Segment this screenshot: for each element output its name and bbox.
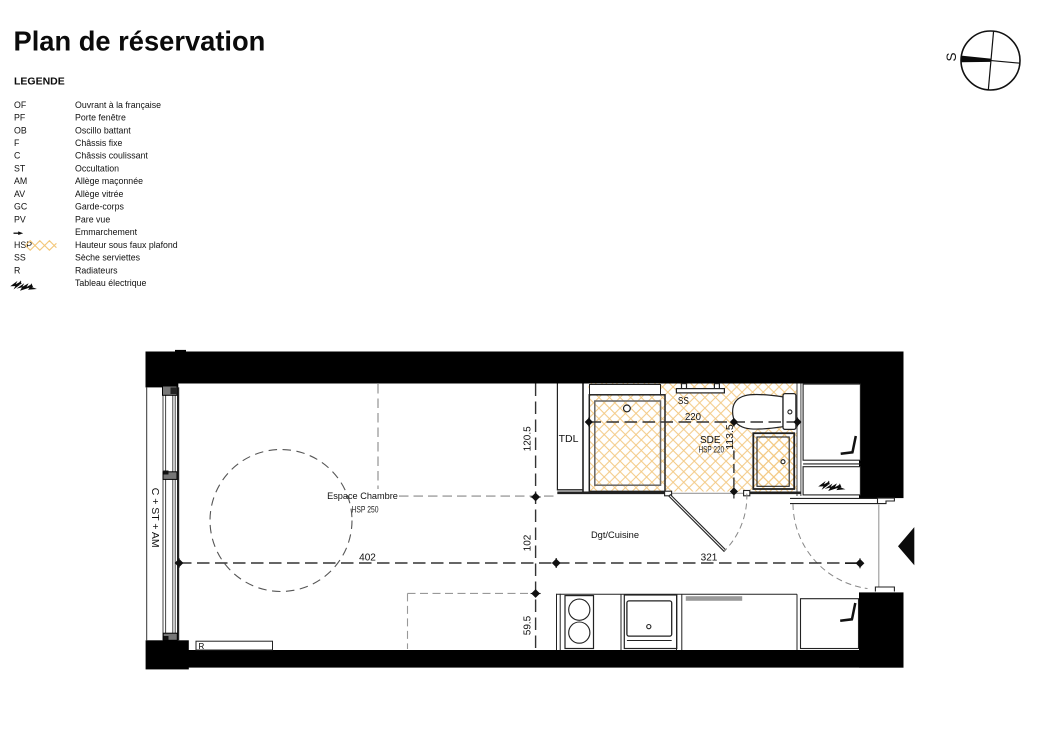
- svg-text:PV: PV: [14, 214, 26, 224]
- svg-text:Pare vue: Pare vue: [75, 214, 110, 224]
- svg-text:GC: GC: [14, 202, 28, 212]
- svg-text:SS: SS: [14, 253, 26, 263]
- svg-text:Emmarchement: Emmarchement: [75, 227, 138, 237]
- svg-text:C: C: [14, 151, 21, 161]
- svg-text:F: F: [14, 138, 20, 148]
- svg-text:HSP 250: HSP 250: [352, 505, 379, 515]
- svg-text:Oscillo battant: Oscillo battant: [75, 125, 131, 135]
- svg-text:Tableau électrique: Tableau électrique: [75, 278, 147, 288]
- svg-text:S: S: [944, 52, 959, 61]
- svg-text:Hauteur sous faux plafond: Hauteur sous faux plafond: [75, 240, 178, 250]
- svg-text:402: 402: [359, 553, 376, 564]
- svg-text:C + ST + AM: C + ST + AM: [149, 488, 161, 548]
- svg-text:120.5: 120.5: [523, 426, 534, 451]
- svg-text:Châssis fixe: Châssis fixe: [75, 138, 123, 148]
- svg-text:220: 220: [685, 411, 701, 423]
- svg-text:AM: AM: [14, 176, 27, 186]
- svg-text:Sèche serviettes: Sèche serviettes: [75, 253, 141, 263]
- svg-text:59.5: 59.5: [523, 615, 534, 635]
- svg-text:Porte fenêtre: Porte fenêtre: [75, 113, 126, 123]
- svg-text:102: 102: [523, 534, 534, 551]
- svg-text:HSP 220: HSP 220: [698, 445, 724, 455]
- svg-text:SS: SS: [678, 396, 689, 407]
- svg-text:Allège vitrée: Allège vitrée: [75, 189, 124, 199]
- svg-text:Garde-corps: Garde-corps: [75, 202, 124, 212]
- svg-text:Espace Chambre: Espace Chambre: [327, 491, 398, 501]
- svg-text:AV: AV: [14, 189, 25, 199]
- svg-text:113.5: 113.5: [724, 424, 736, 450]
- svg-text:Occultation: Occultation: [75, 163, 119, 173]
- svg-text:TDL: TDL: [559, 433, 579, 445]
- svg-text:OB: OB: [14, 125, 27, 135]
- svg-text:R: R: [199, 642, 205, 651]
- svg-text:Allège maçonnée: Allège maçonnée: [75, 176, 143, 186]
- svg-text:R: R: [14, 265, 20, 275]
- svg-text:Ouvrant à la française: Ouvrant à la française: [75, 100, 161, 110]
- svg-text:321: 321: [701, 553, 718, 564]
- svg-text:PF: PF: [14, 113, 26, 123]
- svg-text:ST: ST: [14, 163, 26, 173]
- svg-text:LEGENDE: LEGENDE: [14, 76, 65, 88]
- svg-text:Châssis coulissant: Châssis coulissant: [75, 151, 148, 161]
- svg-text:Plan de réservation: Plan de réservation: [14, 26, 266, 57]
- svg-text:Dgt/Cuisine: Dgt/Cuisine: [591, 530, 639, 540]
- svg-text:Radiateurs: Radiateurs: [75, 265, 118, 275]
- svg-text:OF: OF: [14, 100, 27, 110]
